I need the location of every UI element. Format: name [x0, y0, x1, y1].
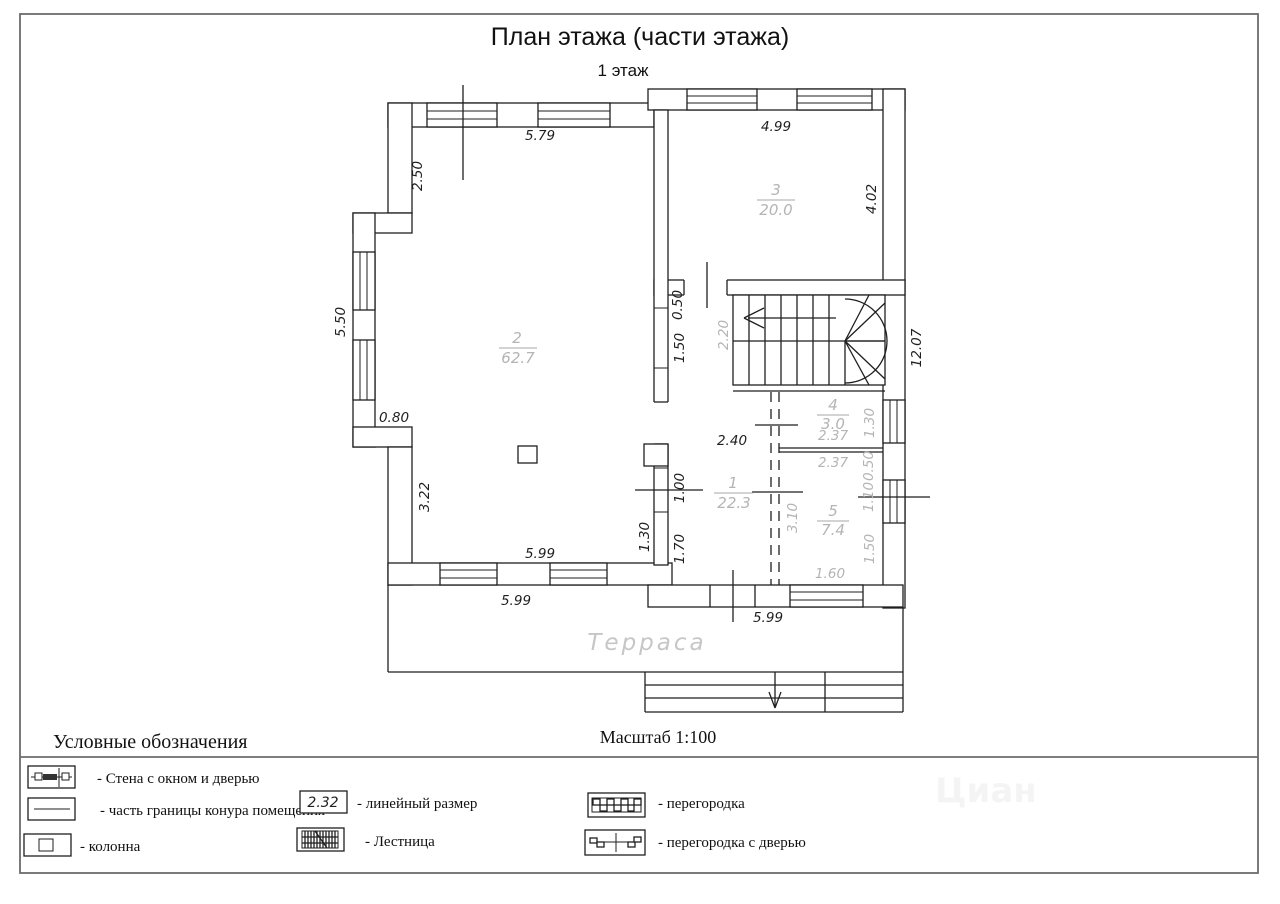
legend-label-column: - колонна — [80, 839, 141, 855]
dim-mid-low-a: 1.00 — [672, 473, 688, 503]
legend-label-wall-window-door: - Стена с окном и дверью — [97, 771, 260, 787]
window-bottom-160 — [790, 585, 863, 607]
room4-area: 3.0 — [821, 415, 845, 433]
column-on-wall — [644, 444, 668, 466]
entry-arrow — [769, 672, 781, 708]
window-top-left-2 — [538, 103, 610, 127]
dim-left-bay: 5.50 — [333, 307, 349, 337]
window-top-left-1 — [427, 103, 497, 127]
bay-bottom-step — [353, 427, 412, 447]
left-wall-upper — [388, 103, 412, 213]
dim-mid-top-a: 0.50 — [670, 290, 686, 320]
bay-wall — [353, 213, 375, 447]
column-freestanding — [518, 446, 537, 463]
floor-plan-sheet: План этажа (части этажа) 1 этаж — [0, 0, 1280, 904]
dim-right-total: 12.07 — [909, 328, 925, 367]
dim-room2-bottom: 5.99 — [525, 546, 555, 562]
dim-window-110: 1.10 — [861, 482, 877, 512]
dim-top-room3: 4.99 — [761, 119, 791, 135]
window-right-110 — [883, 480, 905, 523]
bay-window-1 — [353, 252, 375, 310]
dim-wall-seg-150: 1.50 — [862, 534, 878, 564]
staircase — [733, 295, 887, 391]
scale-label: Масштаб 1:100 — [600, 727, 717, 747]
legend-symbol-linear-size: 2.32 — [300, 791, 347, 813]
dim-window-160: 1.60 — [815, 566, 845, 582]
legend-label-contour: - часть границы конура помещения — [100, 803, 325, 819]
dim-wall-seg-050: 0.50 — [861, 451, 877, 481]
room2-area: 62.7 — [501, 349, 535, 367]
room2-number: 2 — [512, 329, 522, 347]
legend-symbol-column — [24, 834, 71, 856]
legend: Условные обозначения - Стена с окном и д… — [24, 731, 806, 856]
room3-door-opening — [684, 279, 727, 296]
dim-mid-top-b: 1.50 — [672, 333, 688, 363]
dim-room5-height: 3.10 — [785, 503, 801, 533]
room5-area: 7.4 — [821, 521, 845, 539]
window-top-right-2 — [797, 89, 872, 110]
legend-label-linear-size: - линейный размер — [357, 796, 477, 812]
dim-terrace-top: 5.99 — [501, 593, 531, 609]
dim-left-step: 0.80 — [379, 410, 409, 426]
watermark: Циан — [935, 771, 1037, 811]
bay-window-2 — [353, 340, 375, 400]
dim-hall-width: 2.40 — [717, 433, 747, 449]
legend-heading: Условные обозначения — [53, 731, 247, 753]
dim-hall-bottom: 5.99 — [753, 610, 783, 626]
dim-mid-door: 1.30 — [637, 522, 653, 552]
dim-mid-low-b: 1.70 — [672, 534, 688, 564]
block-bottom-wall — [648, 585, 903, 607]
dim-top-room2: 5.79 — [525, 128, 555, 144]
window-bottom-2 — [550, 563, 607, 585]
window-bottom-1 — [440, 563, 497, 585]
legend-linear-size-sample: 2.32 — [307, 795, 338, 811]
legend-symbol-partition — [588, 793, 645, 817]
legend-symbol-wall-window-door — [28, 766, 75, 788]
room5-number: 5 — [828, 502, 838, 520]
room1-number: 1 — [728, 474, 738, 492]
legend-symbol-stairs — [297, 828, 344, 851]
dim-left-upper: 2.50 — [410, 161, 426, 191]
room3-area: 20.0 — [759, 201, 792, 219]
dim-stair-width: 2.20 — [716, 320, 732, 350]
page-title: План этажа (части этажа) — [491, 23, 789, 51]
dim-room5-width: 2.37 — [818, 455, 848, 471]
middle-wall — [654, 110, 668, 565]
terrace-label: Терраса — [587, 630, 706, 656]
window-top-right-1 — [687, 89, 757, 110]
floor-subtitle: 1 этаж — [598, 61, 650, 80]
legend-label-stairs: - Лестница — [365, 834, 435, 850]
room2-bottom-wall — [388, 563, 672, 585]
partition-room1-rooms45 — [771, 392, 779, 585]
room4-number: 4 — [828, 396, 838, 414]
dim-room3-right: 4.02 — [864, 184, 880, 214]
legend-label-partition-door: - перегородка с дверью — [658, 835, 806, 851]
legend-label-partition: - перегородка — [658, 796, 745, 812]
dim-left-lower: 3.22 — [417, 482, 433, 512]
window-right-130 — [883, 400, 905, 443]
room1-area: 22.3 — [717, 494, 750, 512]
floor-plan-drawing: План этажа (части этажа) 1 этаж — [0, 0, 1280, 904]
middle-wall-door-opening — [653, 402, 669, 444]
legend-symbol-contour — [28, 798, 75, 820]
room3-number: 3 — [771, 181, 781, 199]
dim-room4-height: 1.30 — [862, 408, 878, 438]
legend-symbol-partition-door — [585, 830, 645, 855]
